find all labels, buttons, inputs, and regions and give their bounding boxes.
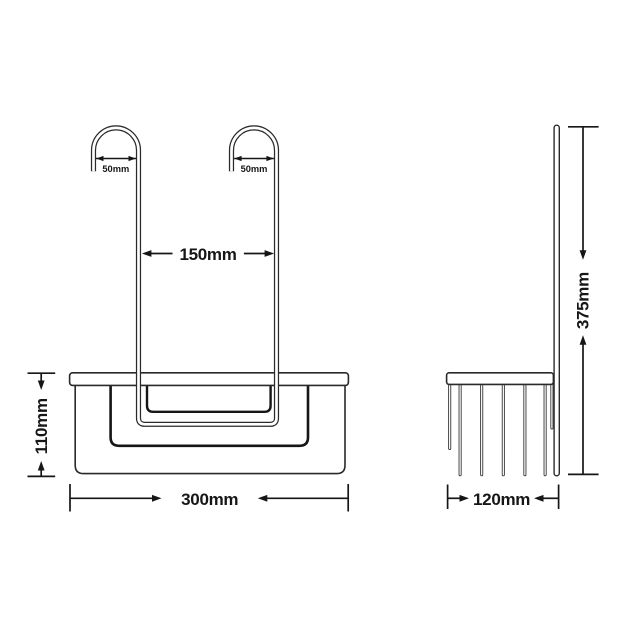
dimension-basket-width: 300mm	[70, 484, 348, 512]
arrowhead-down-icon	[580, 250, 587, 260]
dimension-basket-depth: 120mm	[448, 485, 559, 510]
front-view	[70, 128, 349, 474]
label-basket-width: 300mm	[181, 490, 238, 509]
side-basket-tines-highlight	[450, 381, 552, 475]
side-basket-tines	[450, 381, 552, 475]
arrowhead-left-icon	[142, 250, 152, 257]
side-view	[447, 128, 557, 475]
side-shelf	[447, 373, 554, 385]
arrowhead-right-icon	[152, 495, 162, 502]
label-overall-height: 375mm	[573, 272, 592, 329]
arrowhead-right-icon	[266, 156, 274, 161]
arrowhead-up-icon	[580, 335, 587, 345]
dimension-right-hook-width: 50mm	[234, 156, 274, 174]
arrowhead-left-icon	[534, 495, 544, 502]
dimension-basket-height: 110mm	[28, 373, 56, 476]
arrowhead-left-icon	[258, 495, 268, 502]
arrowhead-right-icon	[265, 250, 275, 257]
label-left-hook-width: 50mm	[102, 164, 129, 174]
arrowhead-down-icon	[38, 381, 45, 391]
arrowhead-right-icon	[460, 495, 470, 502]
basket-rim	[70, 373, 349, 386]
dimension-hook-spacing: 150mm	[142, 245, 274, 264]
label-basket-depth: 120mm	[473, 490, 530, 509]
label-right-hook-width: 50mm	[241, 164, 268, 174]
dimension-diagram: 50mm 50mm 150mm 110mm	[0, 0, 630, 630]
label-basket-height: 110mm	[32, 398, 51, 454]
arrowhead-left-icon	[234, 156, 242, 161]
arrowhead-up-icon	[38, 461, 45, 471]
drawing-canvas: 50mm 50mm 150mm 110mm	[0, 0, 630, 630]
label-hook-spacing: 150mm	[179, 245, 236, 264]
arrowhead-left-icon	[96, 156, 104, 161]
arrowhead-right-icon	[129, 156, 137, 161]
basket-body-outline	[75, 385, 345, 474]
dimension-left-hook-width: 50mm	[96, 156, 136, 174]
dimension-overall-height: 375mm	[568, 127, 599, 475]
